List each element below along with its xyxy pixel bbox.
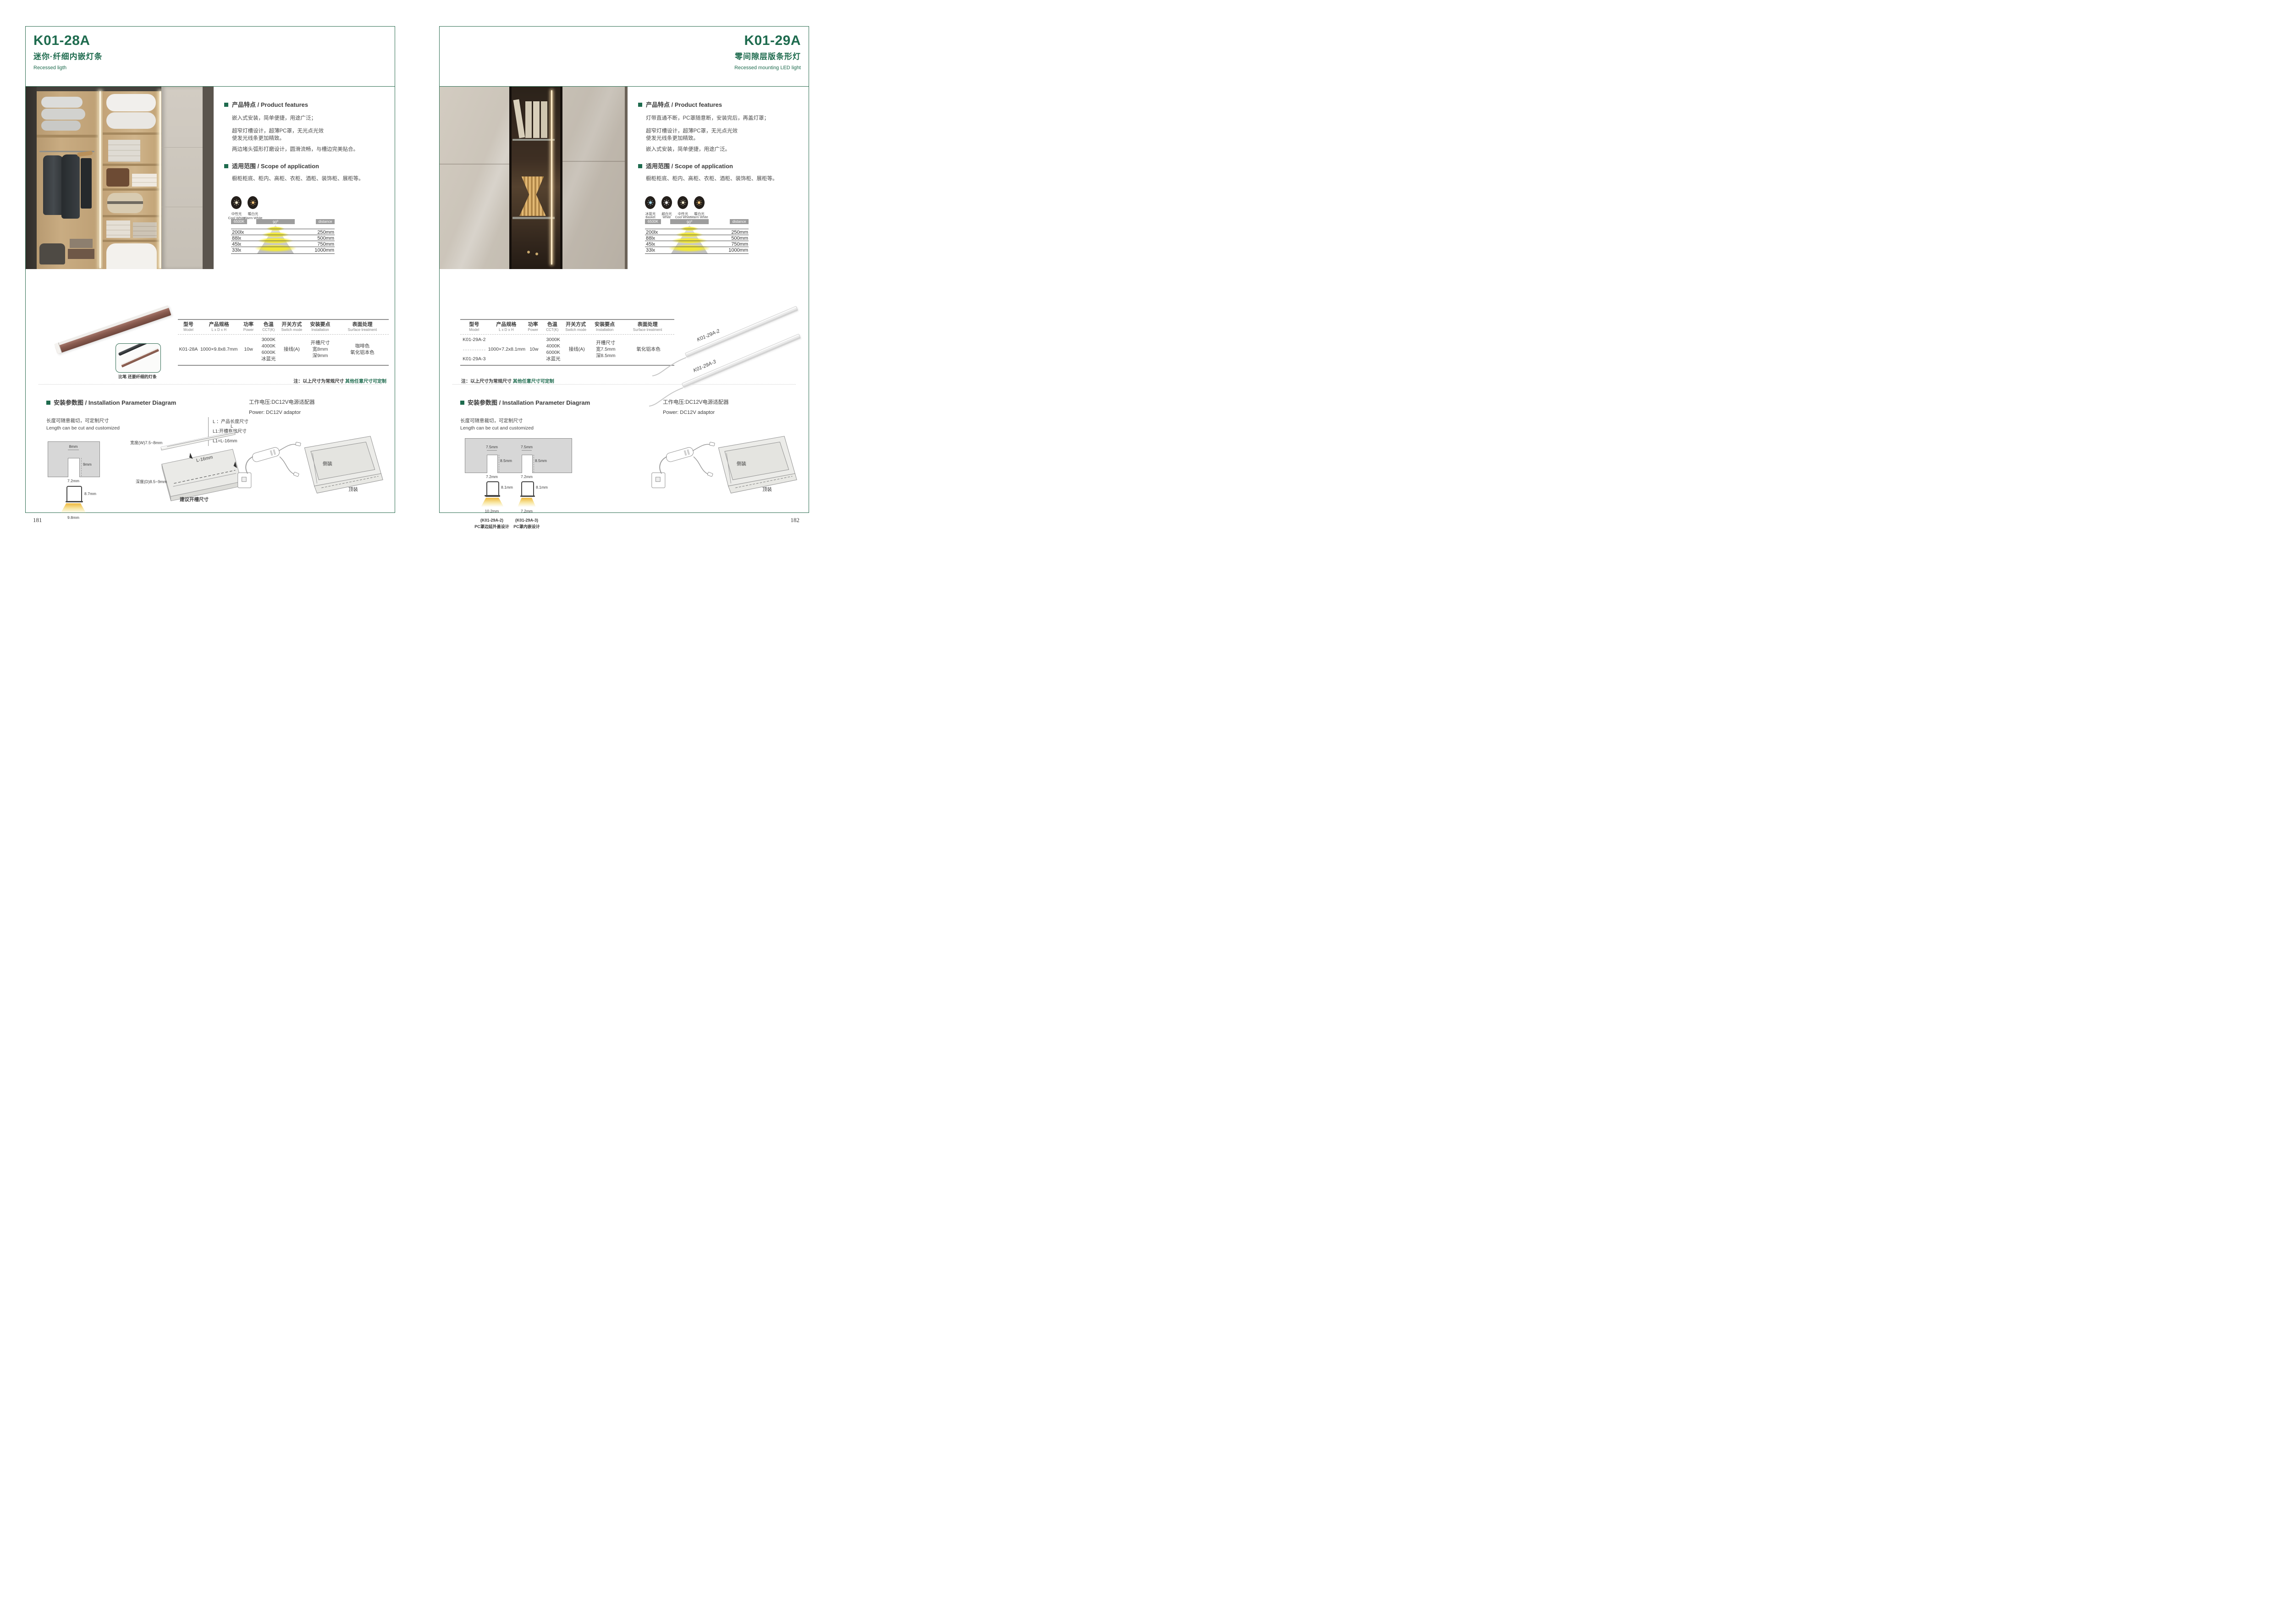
pillow [106, 112, 156, 129]
section-divider [39, 384, 382, 385]
catalog-spread: { "colors": { "brand_green": "#1E6B4E", … [0, 0, 830, 541]
spec-header-cell: 产品规格L x D x H [488, 322, 524, 332]
page-subtitle-cn: 零间隙层版条形灯 [735, 52, 801, 61]
spec-header-row: 型号Model 产品规格L x D x H 功率Power 色温CCT(K) 开… [178, 320, 389, 335]
towel-pile [133, 222, 157, 238]
shelf [103, 132, 161, 135]
installation-heading: 安装参数图 / Installation Parameter Diagram [54, 400, 176, 407]
photo-top-rail [37, 87, 161, 91]
leather-bag [39, 243, 65, 264]
sun-glyph [647, 199, 654, 206]
cut-note-en: Length can be cut and customized [460, 425, 534, 431]
spec-header-cell: 表面处理Surface treatment [621, 322, 674, 332]
spec-install: 开槽尺寸宽7.5mm深8.5mm [590, 340, 622, 359]
dim-top: 7.5mm [486, 445, 498, 449]
light-beam [518, 498, 536, 507]
page-number-right: 182 [775, 517, 799, 524]
white-icon [661, 196, 672, 209]
page-subtitle-en: Recessed mounting LED light [734, 65, 801, 71]
angle-chip: 900 [670, 219, 709, 224]
light-mode-label-en: Warm White [686, 216, 713, 219]
dim-bottom: 9.8mm [67, 515, 79, 520]
sun-glyph [680, 199, 686, 206]
photo-left-dark-edge [26, 87, 37, 269]
led-strip-product [685, 306, 798, 358]
product-caption: 比笔 还要纤细的灯条 [118, 374, 157, 379]
dim-tick [68, 450, 79, 450]
shelf [103, 164, 161, 166]
feature-line: 超窄灯槽设计，超薄PC罩，无光点光效 [232, 128, 324, 134]
dim-bottom: 7.2mm [521, 509, 533, 513]
scope-body: 橱柜柜底、柜内、高柜、衣柜、酒柜、装饰柜、展柜等。 [232, 176, 364, 182]
door-seam [161, 207, 203, 207]
spec-size: 1000×7.2x8.1mm [488, 347, 525, 353]
shelf [103, 240, 161, 242]
distance-value: 500mm [317, 236, 334, 241]
distance-value: 750mm [731, 242, 748, 247]
note-highlight: 其他任意尺寸可定制 [513, 379, 554, 384]
dim-tick [499, 455, 499, 472]
custom-size-note: 注：以上尺寸为常规尺寸 其他任意尺寸可定制 [461, 377, 554, 384]
board-width-label: 宽度(W)7.5~8mm [130, 440, 162, 445]
page-subtitle-cn: 迷你·纤细内嵌灯条 [33, 52, 103, 61]
variant-caption: PC罩边延外盖设计 [474, 524, 509, 529]
dim-slot: 7.2mm [67, 479, 79, 483]
distance-value: 1000mm [728, 248, 748, 253]
folded-linens [108, 140, 140, 162]
spec-cct: 3000K4000K 6000K冰蓝光 [543, 337, 564, 362]
photo-right-dark-edge [625, 87, 628, 269]
section-bullet [638, 103, 642, 107]
box [70, 239, 93, 248]
dim-height: 8.1mm [536, 485, 548, 490]
spec-header-cell: 开关方式Switch mode [279, 322, 304, 332]
section-bullet [224, 164, 228, 168]
photo-bay-b [103, 91, 161, 269]
door-seam [161, 147, 203, 148]
feature-line: 灯带直通不断，PC罩随意断，安装完后，再盖灯罩； [646, 116, 769, 121]
cut-note-cn: 长度可随意裁切，可定制尺寸 [460, 418, 523, 424]
beam-distance-table: 6500K 900 distance 200lx 250mm 88lx 500m… [231, 219, 335, 256]
dim-bottom: 10.2mm [485, 509, 499, 513]
page-title: K01-28A [33, 33, 90, 49]
spec-size: 1000×9.8x8.7mm [199, 347, 239, 353]
features-heading: 产品特点 / Product features [232, 102, 308, 109]
dim-top: 7.5mm [521, 445, 533, 449]
spec-header-cell: 功率Power [239, 322, 258, 332]
spec-header-cell: 产品规格L x D x H [199, 322, 239, 332]
spec-header-cell: 安装要点Installation [589, 322, 621, 332]
scope-heading: 适用范围 / Scope of application [232, 163, 319, 170]
book-spine [525, 101, 532, 138]
variant-caption: PC罩内嵌设计 [513, 524, 540, 529]
spec-table: 型号Model 产品规格L x D x H 功率Power 色温CCT(K) 开… [178, 319, 389, 366]
sun-glyph [696, 199, 702, 206]
scope-heading: 适用范围 / Scope of application [646, 163, 733, 170]
sun-glyph [233, 199, 240, 206]
spec-header-row: 型号Model 产品规格L x D x H 功率Power 色温CCT(K) 开… [460, 320, 674, 335]
spec-header-cell: 色温CCT(K) [541, 322, 563, 332]
custom-size-note: 注：以上尺寸为常规尺寸 其他任意尺寸可定制 [178, 377, 386, 384]
side-mount-label: 侧装 [737, 461, 746, 467]
spec-switch: 接线(A) [279, 347, 304, 353]
spec-model: K01-28A [178, 347, 199, 353]
spec-cct: 3000K4000K 6000K冰蓝光 [258, 337, 279, 362]
angle-sup: 0 [277, 220, 278, 223]
book-spine [533, 101, 540, 138]
angle-chip: 900 [256, 219, 295, 224]
scope-body: 橱柜柜底、柜内、高柜、衣柜、酒柜、装饰柜、展柜等。 [646, 176, 778, 182]
shelf [103, 188, 161, 191]
spec-data-row: K01-29A-2 K01-29A-3 1000×7.2x8.1mm 10w 3… [460, 335, 674, 365]
catalog-page-left: K01-28A 迷你·纤细内嵌灯条 Recessed ligth [25, 26, 395, 513]
groove-notch [68, 458, 80, 477]
spec-surface: 氧化铝本色 [622, 347, 675, 353]
power-title-en: Power: DC12V adaptor [663, 410, 715, 416]
panel-seam [562, 161, 628, 162]
installation-heading: 安装参数图 / Installation Parameter Diagram [468, 400, 590, 407]
satchel [106, 168, 129, 187]
duvet [106, 243, 157, 269]
feature-line: 使发光线条更加精致。 [646, 136, 699, 142]
product-photo-cabinet [440, 87, 628, 269]
spec-surface: 咖啡色氧化铝本色 [336, 343, 389, 356]
dim-slot: 7.2mm [486, 474, 498, 479]
power-title-cn: 工作电压:DC12V电源适配器 [249, 400, 315, 406]
pillow [106, 94, 156, 111]
spec-switch: 接线(A) [564, 347, 590, 353]
sliding-door [161, 87, 203, 269]
power-title-cn: 工作电压:DC12V电源适配器 [663, 400, 729, 406]
feature-line: 嵌入式安装，简单便捷，用途广泛。 [646, 147, 730, 153]
distance-value: 750mm [317, 242, 334, 247]
distance-chip: distance [316, 219, 335, 224]
product-photo-wardrobe [26, 87, 214, 269]
model-divider [463, 350, 485, 350]
spec-header-cell: 型号Model [460, 322, 488, 332]
side-mount-label: 侧装 [323, 461, 332, 467]
distance-value: 250mm [317, 230, 334, 235]
lux-value: 33lx [646, 248, 655, 253]
distance-value: 500mm [731, 236, 748, 241]
sun-glyph [250, 199, 256, 206]
towel-stack [41, 97, 83, 108]
spec-models: K01-29A-2 K01-29A-3 [460, 337, 488, 363]
pen-comparison-inset [116, 343, 161, 373]
dim-depth: 9mm [83, 462, 92, 467]
light-pool [254, 244, 297, 252]
features-heading: 产品特点 / Product features [646, 102, 722, 109]
feature-line: 两边堵头弧形打磨设计，圆滑流畅，与槽边完美贴合。 [232, 147, 358, 153]
spec-install: 开槽尺寸宽8mm深9mm [304, 340, 336, 359]
profile-cross-section [66, 486, 82, 502]
dim-depth: 8.5mm [500, 458, 512, 463]
dim-height: 8.1mm [501, 485, 513, 490]
display-niche [509, 87, 562, 269]
feature-line: 嵌入式安装，简单便捷，用途广泛； [232, 116, 316, 121]
angle-sup: 0 [691, 220, 692, 223]
lux-value: 33lx [232, 248, 241, 253]
panel-seam [440, 164, 509, 165]
photo-right-dark-edge [203, 87, 214, 269]
spec-power: 10w [525, 347, 542, 353]
power-title-en: Power: DC12V adaptor [249, 410, 301, 416]
glass-shelf [512, 139, 555, 141]
dim-tick [522, 450, 532, 451]
shelf [103, 215, 161, 217]
dim-tick [487, 450, 497, 451]
beam-row-line [645, 253, 749, 254]
lux-value: 45lx [232, 242, 241, 247]
led-strip-vertical [160, 91, 161, 268]
spec-data-row: K01-28A 1000×9.8x8.7mm 10w 3000K4000K 60… [178, 335, 389, 365]
adaptor-cabinet-diagram [234, 430, 386, 508]
lux-value: 200lx [646, 230, 658, 235]
led-strip-vertical [99, 91, 101, 268]
groove-notch [487, 455, 498, 473]
section-divider [452, 384, 796, 385]
photo-bay-a [37, 91, 98, 269]
light-beam [481, 498, 504, 507]
dim-tick [81, 458, 82, 476]
dim-slot: 7.2mm [521, 474, 533, 479]
page-subtitle-en: Recessed ligth [33, 65, 66, 71]
page-number-left: 181 [33, 517, 42, 524]
duffel-strap [107, 201, 143, 204]
spec-header-cell: 开关方式Switch mode [563, 322, 589, 332]
hook [535, 253, 538, 255]
note-prefix: 注：以上尺寸为常规尺寸 [293, 379, 345, 384]
folded-towels [132, 174, 157, 187]
spec-header-cell: 表面处理Surface treatment [336, 322, 389, 332]
spec-header-cell: 色温CCT(K) [258, 322, 279, 332]
distance-value: 250mm [731, 230, 748, 235]
top-mount-label: 顶装 [348, 487, 358, 492]
cool-white-icon [231, 196, 242, 209]
section-bullet [224, 103, 228, 107]
book-spine [513, 99, 525, 138]
note-prefix: 注：以上尺寸为常规尺寸 [461, 379, 513, 384]
variant-model: (K01-29A-3) [515, 518, 538, 523]
top-mount-label: 顶装 [762, 487, 772, 492]
towel-stack [41, 121, 81, 131]
groove-notch [522, 455, 533, 473]
towel-pile [106, 220, 130, 238]
spec-table: 型号Model 产品规格L x D x H 功率Power 色温CCT(K) 开… [460, 319, 674, 366]
book-spine [541, 101, 547, 138]
suit-jacket [61, 154, 80, 219]
note-highlight: 其他任意尺寸可定制 [345, 379, 386, 384]
cool-white-icon [678, 196, 688, 209]
feature-line: 使发光线条更加精致。 [232, 136, 285, 142]
towel-stack [41, 109, 85, 120]
spec-header-cell: 功率Power [524, 322, 541, 332]
beam-row-line [231, 253, 335, 254]
strip-wire [651, 355, 688, 378]
pleated-lamp [518, 176, 547, 216]
board-length-label: L [231, 424, 233, 429]
box [68, 249, 94, 259]
board-depth-label: 深度(D)8.5~9mm [136, 479, 167, 484]
profile-cross-section-29a3 [521, 481, 534, 496]
warm-white-icon [694, 196, 705, 209]
spec-header-cell: 型号Model [178, 322, 199, 332]
dim-height: 8.7mm [84, 491, 96, 496]
catalog-page-right: K01-29A 零间隙层版条形灯 Recessed mounting LED l… [439, 26, 809, 513]
lux-value: 88lx [232, 236, 241, 241]
adaptor-cabinet-diagram [648, 430, 799, 508]
section-bullet [638, 164, 642, 168]
glass-shelf [512, 217, 555, 219]
sun-glyph [663, 199, 670, 206]
angle-value: 90 [273, 220, 277, 225]
section-bullet [46, 401, 50, 405]
dim-top: 8mm [69, 444, 78, 449]
profile-cross-section-29a2 [486, 481, 499, 496]
board-caption: 建议开槽尺寸 [180, 497, 209, 502]
light-beam [61, 503, 86, 513]
warm-white-icon [248, 196, 258, 209]
distance-value: 1000mm [314, 248, 334, 253]
lux-value: 45lx [646, 242, 655, 247]
led-strip-vertical [551, 90, 552, 264]
hook [527, 251, 530, 253]
section-bullet [460, 401, 464, 405]
spec-power: 10w [239, 347, 258, 353]
variant-model: (K01-29A-2) [480, 518, 503, 523]
spec-header-cell: 安装要点Installation [304, 322, 336, 332]
cct-chip: 6500K [231, 219, 247, 224]
ice-blue-icon [645, 196, 656, 209]
dim-depth: 8.5mm [535, 458, 547, 463]
angle-value: 90 [687, 220, 691, 225]
trousers [81, 158, 92, 209]
feature-line: 超窄灯槽设计，超薄PC罩，无光点光效 [646, 128, 738, 134]
lux-value: 88lx [646, 236, 655, 241]
dim-tick [534, 455, 534, 472]
cover-flange [485, 495, 500, 496]
cut-note-en: Length can be cut and customized [46, 425, 120, 431]
profile-end-cap [54, 342, 62, 354]
light-pool [668, 244, 711, 252]
distance-chip: distance [730, 219, 749, 224]
cut-note-cn: 长度可随意裁切，可定制尺寸 [46, 418, 109, 424]
page-title: K01-29A [744, 33, 801, 49]
lux-value: 200lx [232, 230, 244, 235]
groove-cross-section [465, 438, 572, 473]
beam-distance-table: 6500K 900 distance 200lx 250mm 88lx 500m… [645, 219, 749, 256]
shelf [37, 135, 98, 138]
cct-chip: 6500K [645, 219, 661, 224]
